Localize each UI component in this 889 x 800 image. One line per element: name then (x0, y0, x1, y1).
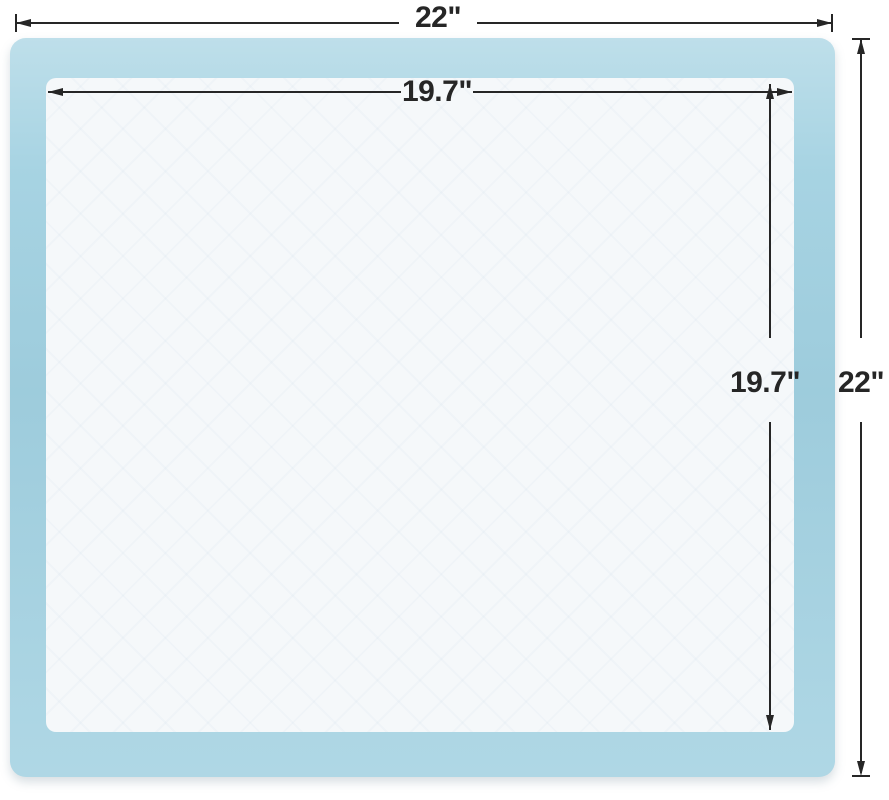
inner-width-left-arrow-icon (48, 88, 63, 96)
inner-height-label: 19.7" (730, 368, 800, 398)
outer-width-right-arrow-icon (817, 19, 832, 27)
outer-height-label: 22" (838, 368, 884, 398)
outer-height-dimension-line (852, 39, 870, 776)
outer-height-up-arrow-icon (857, 39, 865, 54)
inner-height-dimension-line (766, 84, 774, 730)
product-dimension-diagram: 22" 19.7" 19.7" 22" (0, 0, 889, 800)
outer-height-down-arrow-icon (857, 761, 865, 776)
dimension-annotations (0, 0, 889, 800)
inner-width-label: 19.7" (402, 77, 472, 107)
outer-width-left-arrow-icon (16, 19, 31, 27)
inner-height-down-arrow-icon (766, 715, 774, 730)
inner-width-right-arrow-icon (777, 88, 792, 96)
outer-width-label: 22" (415, 3, 461, 33)
